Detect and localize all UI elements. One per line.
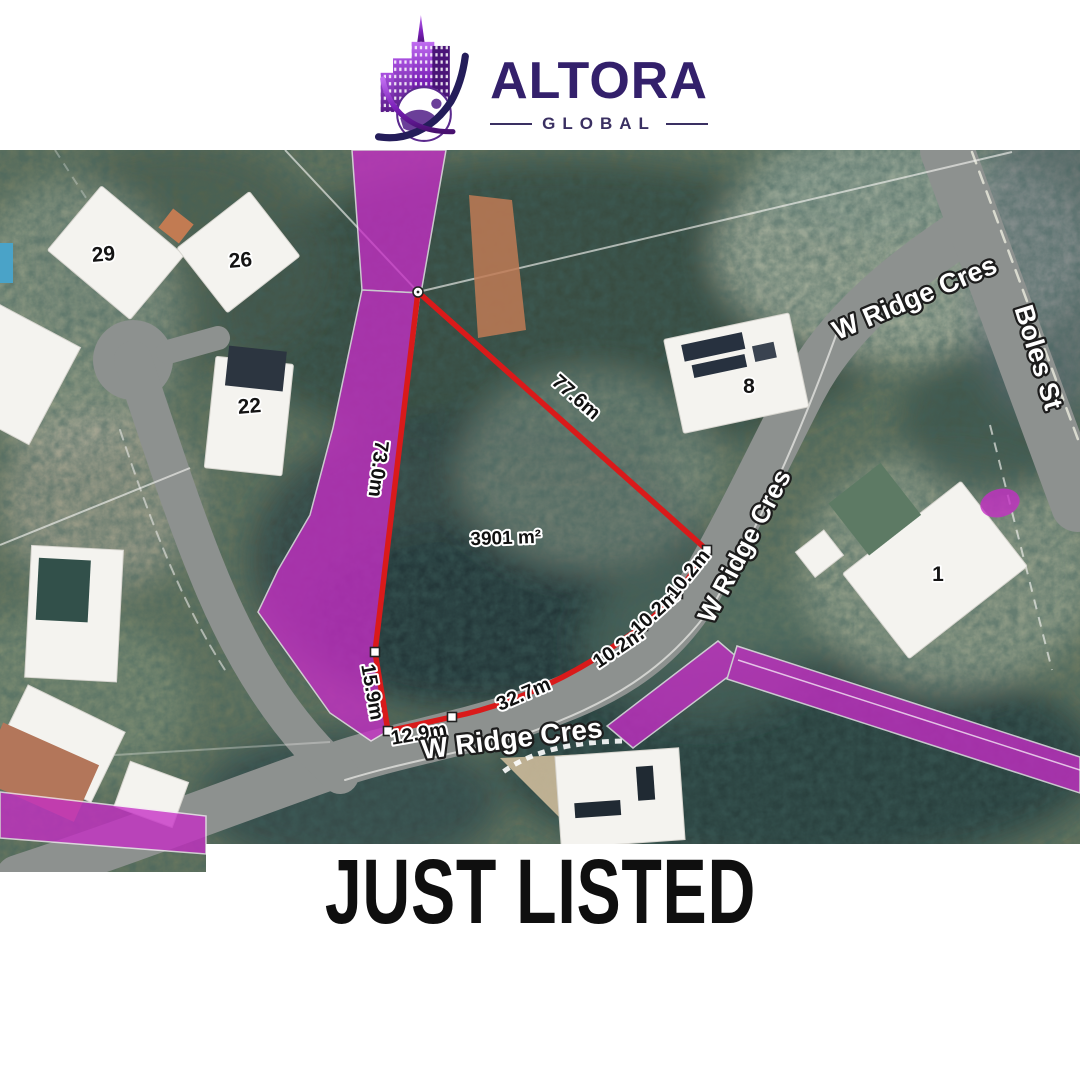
brand-rule-left — [490, 123, 532, 125]
house-number-22: 22 — [237, 394, 262, 419]
brand-logo: ALTORA GLOBAL — [372, 7, 708, 143]
pool — [0, 243, 13, 283]
house-bottom-left-green-roof — [25, 545, 124, 682]
road-stub — [168, 338, 218, 352]
house-number-8: 8 — [743, 375, 755, 398]
social-post: ALTORA GLOBAL — [0, 0, 1080, 1080]
buildings-globe-icon — [372, 15, 476, 143]
brand-wordmark: ALTORA GLOBAL — [490, 55, 708, 132]
satellite-map-svg: 73.0m 77.6m 15.9m 12.9m 32.7m 10.2m 10.2… — [0, 150, 1080, 872]
area-label: 3901 m² — [470, 527, 541, 550]
house-bottom — [555, 748, 685, 848]
house-number-29: 29 — [91, 242, 116, 267]
brand-subtitle-row: GLOBAL — [490, 115, 708, 132]
house-number-26: 26 — [228, 248, 253, 273]
satellite-map: 73.0m 77.6m 15.9m 12.9m 32.7m 10.2m 10.2… — [0, 150, 1080, 872]
brand-subtitle: GLOBAL — [542, 115, 656, 132]
headline: JUST LISTED — [324, 846, 755, 938]
house-number-1: 1 — [932, 563, 944, 586]
headline-wrap: JUST LISTED — [0, 846, 1080, 938]
brand-name: ALTORA — [490, 55, 708, 107]
header: ALTORA GLOBAL — [0, 0, 1080, 150]
brand-rule-right — [666, 123, 708, 125]
